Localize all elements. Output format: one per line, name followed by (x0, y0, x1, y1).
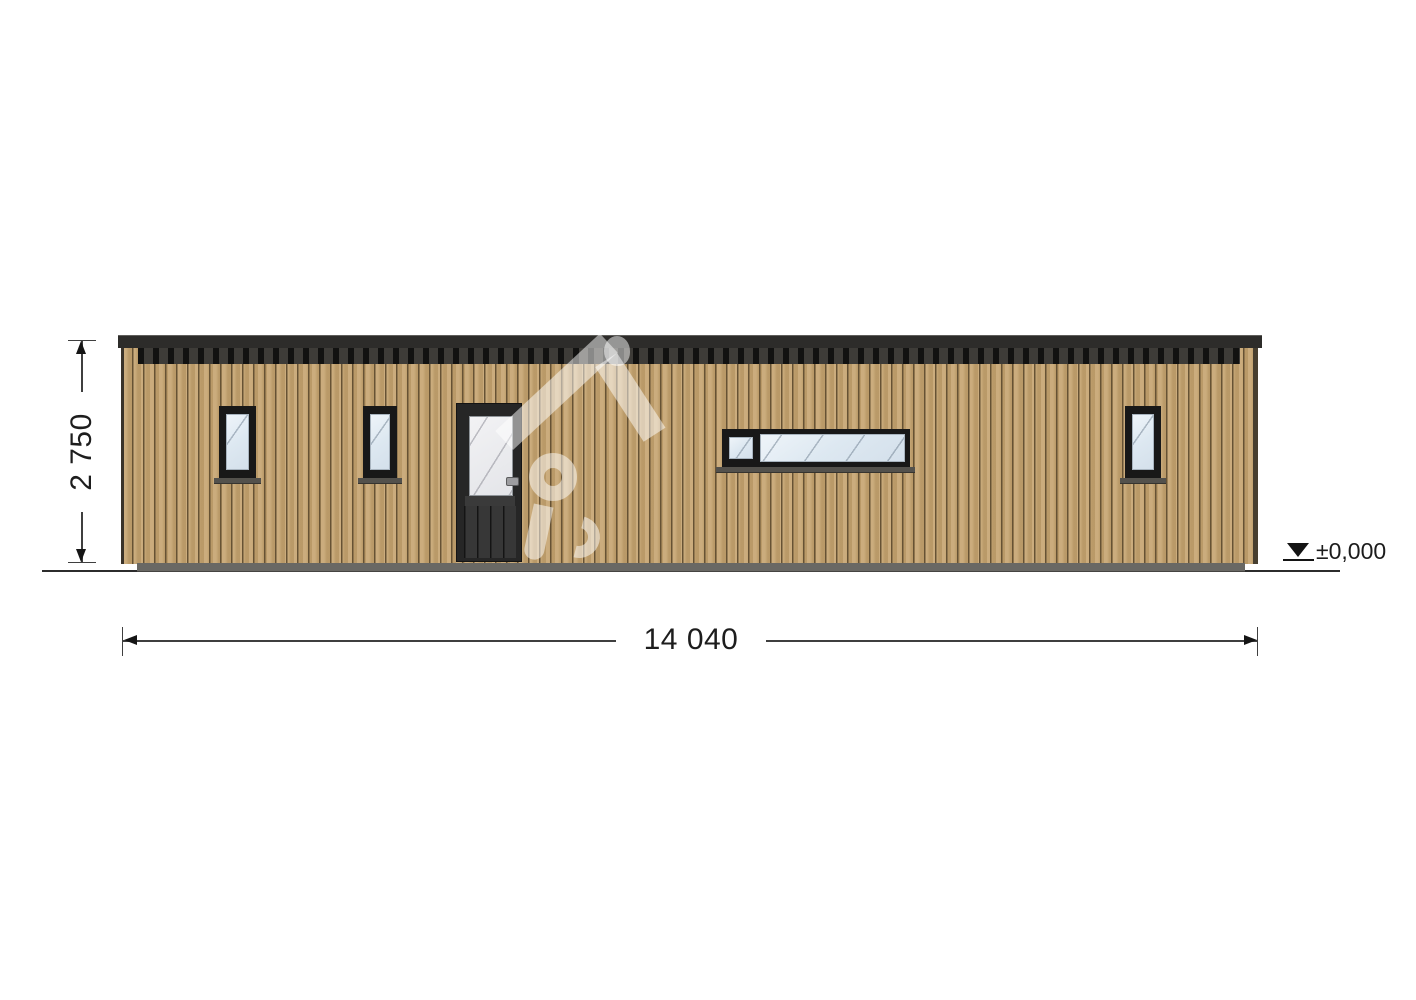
roof-fascia (118, 335, 1262, 348)
wall-right-corner-trim (1253, 348, 1258, 564)
window-1-glass (226, 414, 249, 470)
width-dim-label: 14 040 (616, 622, 766, 659)
wall-siding (121, 348, 1258, 564)
level-label: ±0,000 (1316, 540, 1386, 563)
height-dim-arrow-bottom (76, 549, 86, 562)
height-dim-label: 2 750 (64, 392, 100, 512)
level-marker-triangle-icon (1287, 543, 1309, 557)
window-1 (219, 406, 256, 478)
window-3-small-pane (729, 437, 753, 459)
fascia-slat-band (138, 348, 1240, 364)
window-2 (363, 406, 397, 478)
elevation-drawing: 2 750 14 040 ±0,000 (0, 0, 1416, 1000)
plinth (137, 563, 1245, 572)
window-3-long-pane (760, 434, 905, 462)
window-4-sill (1120, 478, 1166, 484)
window-2-sill (358, 478, 402, 484)
width-dim-arrow-right (1244, 635, 1257, 645)
door-lower-panel (464, 506, 516, 558)
wall-left-corner-trim (121, 348, 124, 564)
height-dim-tick-bottom (68, 562, 96, 563)
window-2-glass (370, 414, 390, 470)
window-4 (1125, 406, 1161, 478)
width-dim-tick-right (1257, 627, 1258, 656)
level-marker-underline (1283, 559, 1314, 561)
window-4-glass (1132, 414, 1154, 470)
window-3-sill (716, 467, 915, 473)
window-3-long (722, 429, 910, 467)
height-dim-arrow-top (76, 341, 86, 354)
door-mid-rail (465, 496, 515, 506)
width-dim-tick-left (122, 627, 123, 656)
window-1-sill (214, 478, 261, 484)
door-handle-icon (506, 477, 519, 486)
entrance-door (456, 403, 522, 562)
width-dim-arrow-left (124, 635, 137, 645)
